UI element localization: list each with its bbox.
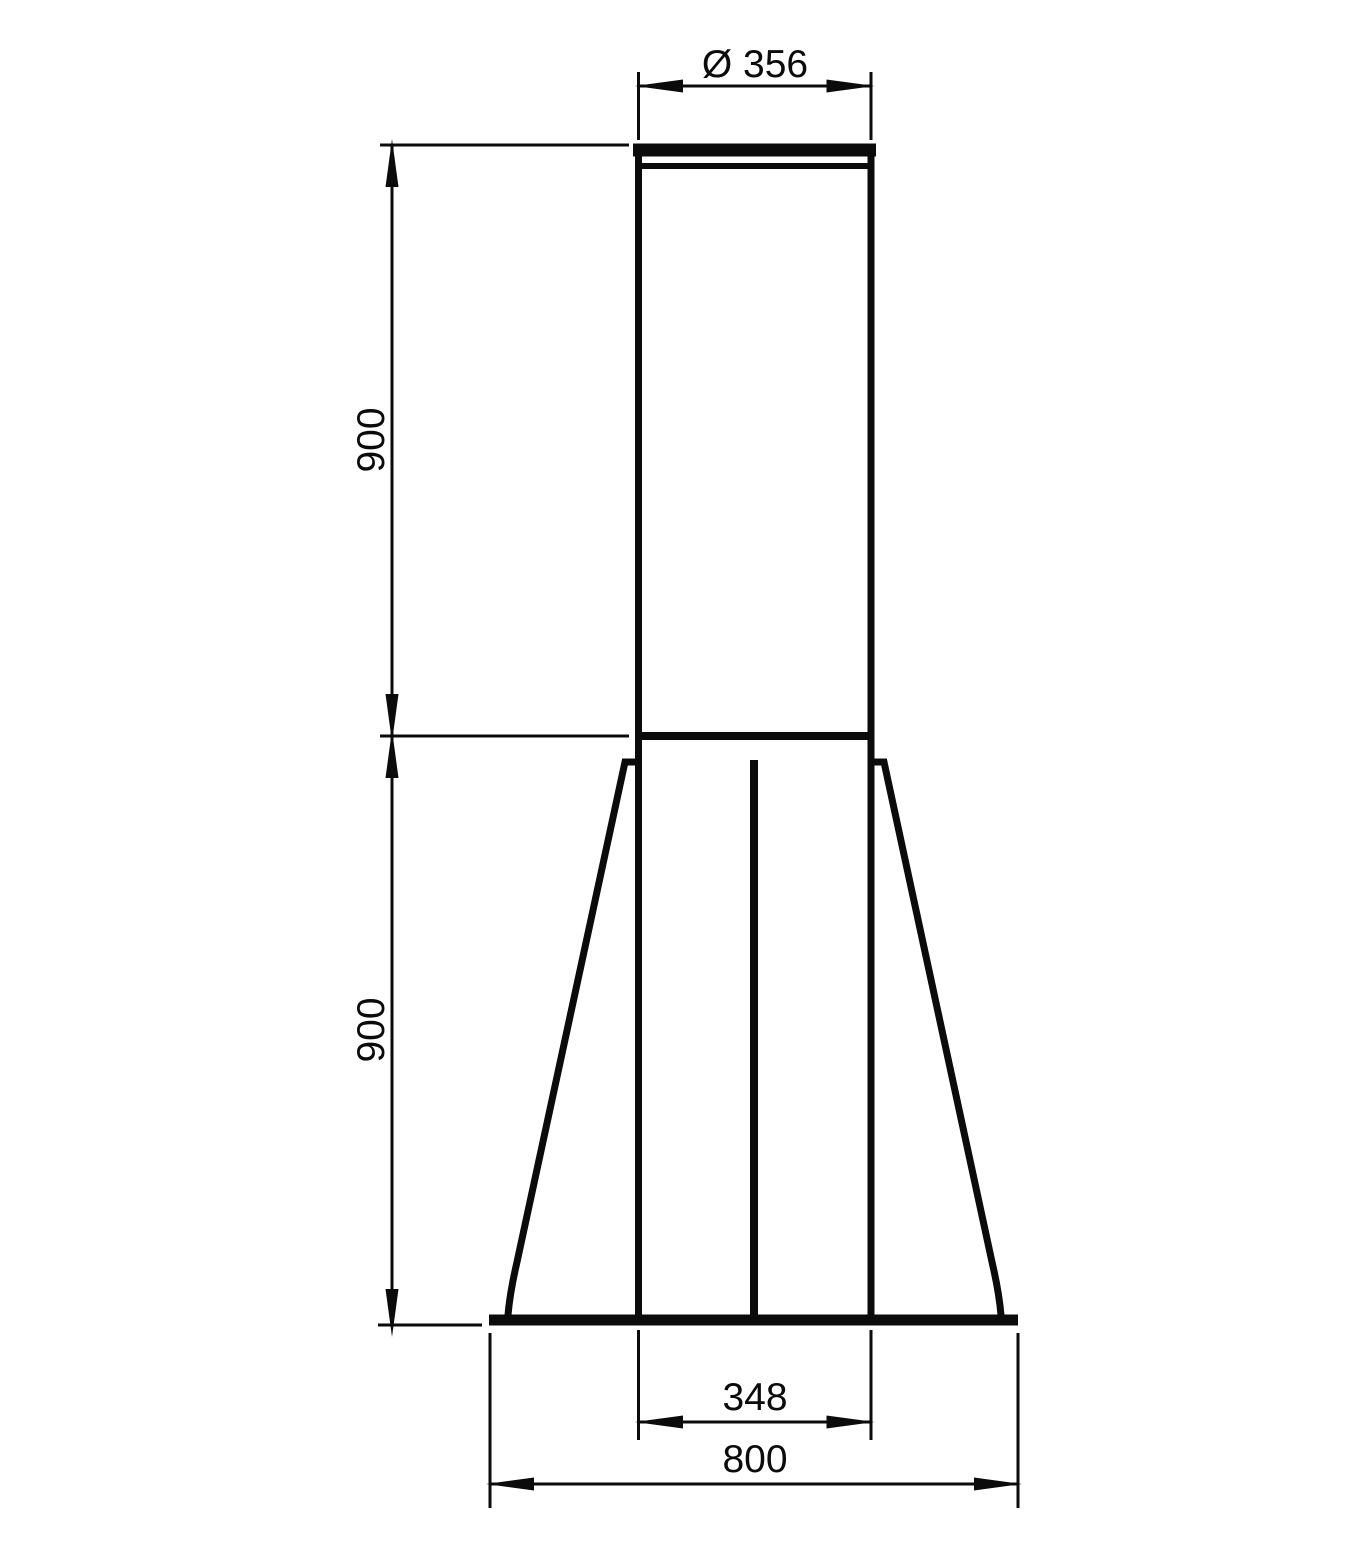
dimension-upper-height: 900 xyxy=(350,139,629,742)
gusset-right xyxy=(871,762,1001,1315)
dimension-tube-width: 348 xyxy=(635,1330,875,1440)
dim-base-width-arrow-left xyxy=(486,1478,534,1491)
dim-tube-width-arrow-right xyxy=(827,1416,875,1429)
dim-diameter-arrow-left xyxy=(635,80,683,93)
bollard-outline xyxy=(489,145,1018,1320)
gusset-left xyxy=(508,762,638,1315)
dimension-top-diameter: Ø 356 xyxy=(635,43,875,140)
dim-base-width-arrow-right xyxy=(974,1478,1022,1491)
dim-lower-height-arrow-bottom xyxy=(386,1289,399,1337)
drawing-page: Ø 356 900 900 xyxy=(0,0,1370,1544)
dim-base-width-label: 800 xyxy=(722,1438,787,1481)
dim-tube-width-arrow-left xyxy=(635,1416,683,1429)
dim-diameter-label: Ø 356 xyxy=(702,43,808,86)
dim-tube-width-label: 348 xyxy=(722,1376,787,1419)
dim-diameter-arrow-right xyxy=(827,80,875,93)
dim-lower-height-label: 900 xyxy=(350,997,393,1062)
bollard-technical-drawing: Ø 356 900 900 xyxy=(0,0,1370,1544)
dimension-lower-height: 900 xyxy=(350,730,482,1337)
dim-upper-height-label: 900 xyxy=(350,407,393,472)
